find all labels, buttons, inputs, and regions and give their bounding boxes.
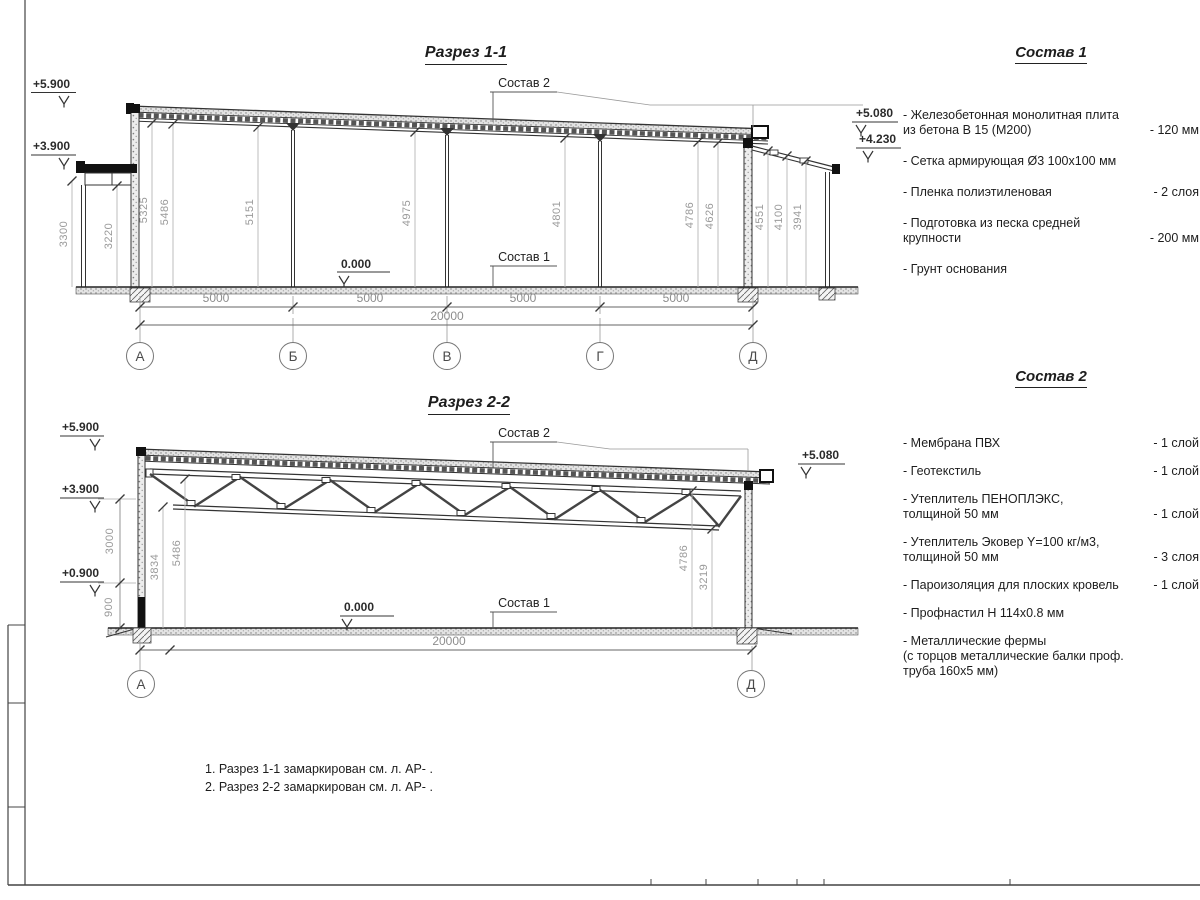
composition2-panel: Состав 2 - Мембрана ПВХ - 1 слой - Геоте… (903, 368, 1199, 692)
elevation-mark: +0.900 (62, 566, 99, 580)
callout-label: Состав 2 (498, 426, 550, 440)
material-value: - 1 слой (1147, 578, 1199, 593)
dim-height: 4786 (678, 545, 690, 571)
material-name: - Подготовка из песка средней крупности (903, 216, 1080, 246)
composition2-list: - Мембрана ПВХ - 1 слой - Геотекстиль - … (903, 436, 1199, 679)
axis-label: А (136, 677, 145, 692)
callout-label: Состав 2 (498, 76, 550, 90)
axis-label: Д (746, 677, 755, 692)
elevation-mark: +5.900 (62, 420, 99, 434)
list-item: - Профнастил Н 114х0.8 мм (903, 606, 1199, 621)
dim-span: 5000 (357, 291, 384, 305)
composition1-title-text: Состав 1 (1015, 44, 1087, 64)
axis-label: В (442, 349, 451, 364)
material-value: - 1 слой (1147, 464, 1199, 479)
material-name: - Металлические фермы (с торцов металлич… (903, 634, 1124, 679)
section1-title: Разрез 1-1 (406, 44, 526, 65)
drawing-sheet: 3300 3220 5325 5486 5151 4975 4801 4786 … (0, 0, 1200, 900)
axis-label: Г (596, 349, 604, 364)
material-name: - Железобетонная монолитная плита из бет… (903, 108, 1119, 138)
dim-height: 3219 (698, 564, 710, 590)
list-item: - Сетка армирующая Ø3 100х100 мм (903, 154, 1199, 169)
elevation-mark: +3.900 (33, 139, 70, 153)
material-name: - Геотекстиль (903, 464, 981, 479)
elevation-mark: +5.080 (802, 448, 839, 462)
material-name: - Утеплитель ПЕНОПЛЭКС, толщиной 50 мм (903, 492, 1063, 522)
dim-height: 900 (103, 597, 115, 617)
section2-span-dims: 20000 (136, 634, 757, 670)
zero-level-mark: 0.000 (344, 600, 374, 614)
list-item: - Грунт основания (903, 262, 1199, 277)
dim-height: 4975 (401, 200, 413, 226)
elevation-mark: +5.900 (33, 77, 70, 91)
elevation-mark: +4.230 (859, 132, 896, 146)
list-item: - Утеплитель Эковер Y=100 кг/м3, толщино… (903, 535, 1199, 565)
section2-callouts: Состав 2 Состав 1 (490, 426, 748, 628)
note-line: 1. Разрез 1-1 замаркирован см. л. АР- . (205, 761, 433, 779)
dim-height: 5325 (138, 197, 150, 223)
section2-left-wall (136, 447, 146, 628)
dim-height: 4786 (684, 202, 696, 228)
material-value: - 3 слоя (1148, 550, 1199, 565)
dim-total: 20000 (432, 634, 466, 648)
section2-height-dims: 3834 5486 4786 3219 (149, 475, 717, 629)
list-item: - Мембрана ПВХ - 1 слой (903, 436, 1199, 451)
material-name: - Грунт основания (903, 262, 1007, 277)
list-item: - Геотекстиль - 1 слой (903, 464, 1199, 479)
section1-right-wall (743, 138, 753, 287)
section2-axes: А Д (128, 671, 765, 698)
dim-total: 20000 (430, 309, 464, 323)
dim-height: 5151 (244, 199, 256, 225)
zero-level-mark: 0.000 (341, 257, 371, 271)
note-line: 2. Разрез 2-2 замаркирован см. л. АР- . (205, 779, 433, 797)
callout-label: Состав 1 (498, 596, 550, 610)
dim-height: 4626 (704, 203, 716, 229)
dim-height: 5486 (159, 199, 171, 225)
section1-span-dims: 5000 5000 5000 5000 20000 (136, 291, 758, 342)
section1-axes: А Б В Г Д (127, 343, 767, 370)
composition1-list: - Железобетонная монолитная плита из бет… (903, 108, 1199, 277)
section1-title-text: Разрез 1-1 (425, 44, 507, 65)
list-item: - Металлические фермы (с торцов металлич… (903, 634, 1199, 679)
section1-floor (76, 287, 858, 302)
axis-label: А (135, 349, 144, 364)
material-value: - 1 слой (1147, 436, 1199, 451)
dim-height: 4551 (754, 204, 766, 230)
material-value: - 200 мм (1144, 231, 1199, 246)
dim-height: 3834 (149, 554, 161, 580)
title-block-ticks (651, 879, 1010, 885)
material-name: - Сетка армирующая Ø3 100х100 мм (903, 154, 1116, 169)
dim-span: 5000 (203, 291, 230, 305)
section2-right-wall (744, 481, 753, 628)
composition1-panel: Состав 1 - Железобетонная монолитная пли… (903, 44, 1199, 293)
material-name: - Мембрана ПВХ (903, 436, 1000, 451)
section1-height-dims: 3300 3220 5325 5486 5151 4975 4801 4786 … (58, 119, 811, 288)
dim-span: 5000 (510, 291, 537, 305)
dim-height: 4100 (773, 204, 785, 230)
composition2-title-text: Состав 2 (1015, 368, 1087, 388)
material-value: - 2 слоя (1148, 185, 1199, 200)
section2-left-dims: 3000 900 (98, 495, 136, 633)
elevation-mark: +3.900 (62, 482, 99, 496)
callout-label: Состав 1 (498, 250, 550, 264)
material-value: - 120 мм (1144, 123, 1199, 138)
section2-drawing: 3000 900 3834 5486 4786 3219 20000 (60, 420, 858, 698)
list-item: - Подготовка из песка средней крупности … (903, 216, 1199, 246)
drawing-notes: 1. Разрез 1-1 замаркирован см. л. АР- . … (205, 761, 433, 796)
composition1-title: Состав 1 (903, 44, 1199, 64)
dim-span: 5000 (663, 291, 690, 305)
material-name: - Пароизоляция для плоских кровель (903, 578, 1119, 593)
material-name: - Утеплитель Эковер Y=100 кг/м3, толщино… (903, 535, 1099, 565)
axis-label: Д (748, 349, 757, 364)
material-value: - 1 слой (1147, 507, 1199, 522)
list-item: - Пароизоляция для плоских кровель - 1 с… (903, 578, 1199, 593)
dim-height: 3220 (103, 223, 115, 249)
section2-title: Разрез 2-2 (409, 394, 529, 415)
axis-label: Б (289, 349, 298, 364)
list-item: - Утеплитель ПЕНОПЛЭКС, толщиной 50 мм -… (903, 492, 1199, 522)
dim-height: 5486 (171, 540, 183, 566)
elevation-mark: +5.080 (856, 106, 893, 120)
dim-height: 3300 (58, 221, 70, 247)
section2-floor (106, 628, 858, 644)
material-name: - Пленка полиэтиленовая (903, 185, 1052, 200)
list-item: - Железобетонная монолитная плита из бет… (903, 108, 1199, 138)
material-name: - Профнастил Н 114х0.8 мм (903, 606, 1064, 621)
dim-height: 3000 (104, 528, 116, 554)
section1-callouts: Состав 2 Состав 1 (490, 76, 863, 287)
section1-left-wall (129, 104, 140, 287)
section1-drawing: 3300 3220 5325 5486 5151 4975 4801 4786 … (31, 76, 901, 370)
section1-roof (126, 103, 768, 144)
dim-height: 4801 (551, 201, 563, 227)
composition2-title: Состав 2 (903, 368, 1199, 388)
list-item: - Пленка полиэтиленовая - 2 слоя (903, 185, 1199, 200)
section2-title-text: Разрез 2-2 (428, 394, 510, 415)
dim-height: 3941 (792, 204, 804, 230)
